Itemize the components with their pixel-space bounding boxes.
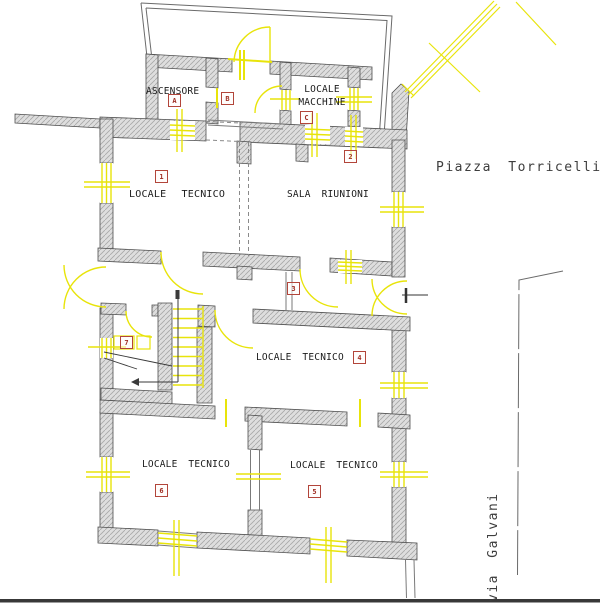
- marker-4: 4: [353, 351, 366, 364]
- street-label-piazza-torricelli: Piazza Torricelli: [436, 160, 600, 175]
- threshold-mark: [402, 288, 428, 303]
- room-label-locale-macchine-line1: LOCALE: [292, 83, 352, 96]
- room-label-locale-tecnico-1: LOCALE TECNICO: [129, 189, 225, 200]
- marker-a: A: [168, 94, 181, 107]
- marker-7: 7: [120, 336, 133, 349]
- street-label-via-galvani: via Galvani: [486, 512, 501, 602]
- room-label-locale-tecnico-6: LOCALE TECNICO: [142, 459, 230, 470]
- boundary-lines: [518, 271, 564, 575]
- marker-5: 5: [308, 485, 321, 498]
- floor-plan-page: ASCENSORE LOCALE MACCHINE LOCALE TECNICO…: [0, 0, 600, 607]
- room-label-locale-macchine: LOCALE MACCHINE: [292, 83, 352, 109]
- ground-line: [0, 599, 600, 603]
- marker-c: C: [300, 111, 313, 124]
- room-label-locale-tecnico-5: LOCALE TECNICO: [290, 460, 378, 471]
- marker-6: 6: [155, 484, 168, 497]
- marker-1: 1: [155, 170, 168, 183]
- room-label-sala-riunioni: SALA RIUNIONI: [287, 189, 369, 200]
- room-label-locale-macchine-line2: MACCHINE: [292, 96, 352, 109]
- room-label-locale-tecnico-4: LOCALE TECNICO: [256, 352, 344, 363]
- marker-b: B: [221, 92, 234, 105]
- marker-3: 3: [287, 282, 300, 295]
- marker-2: 2: [344, 150, 357, 163]
